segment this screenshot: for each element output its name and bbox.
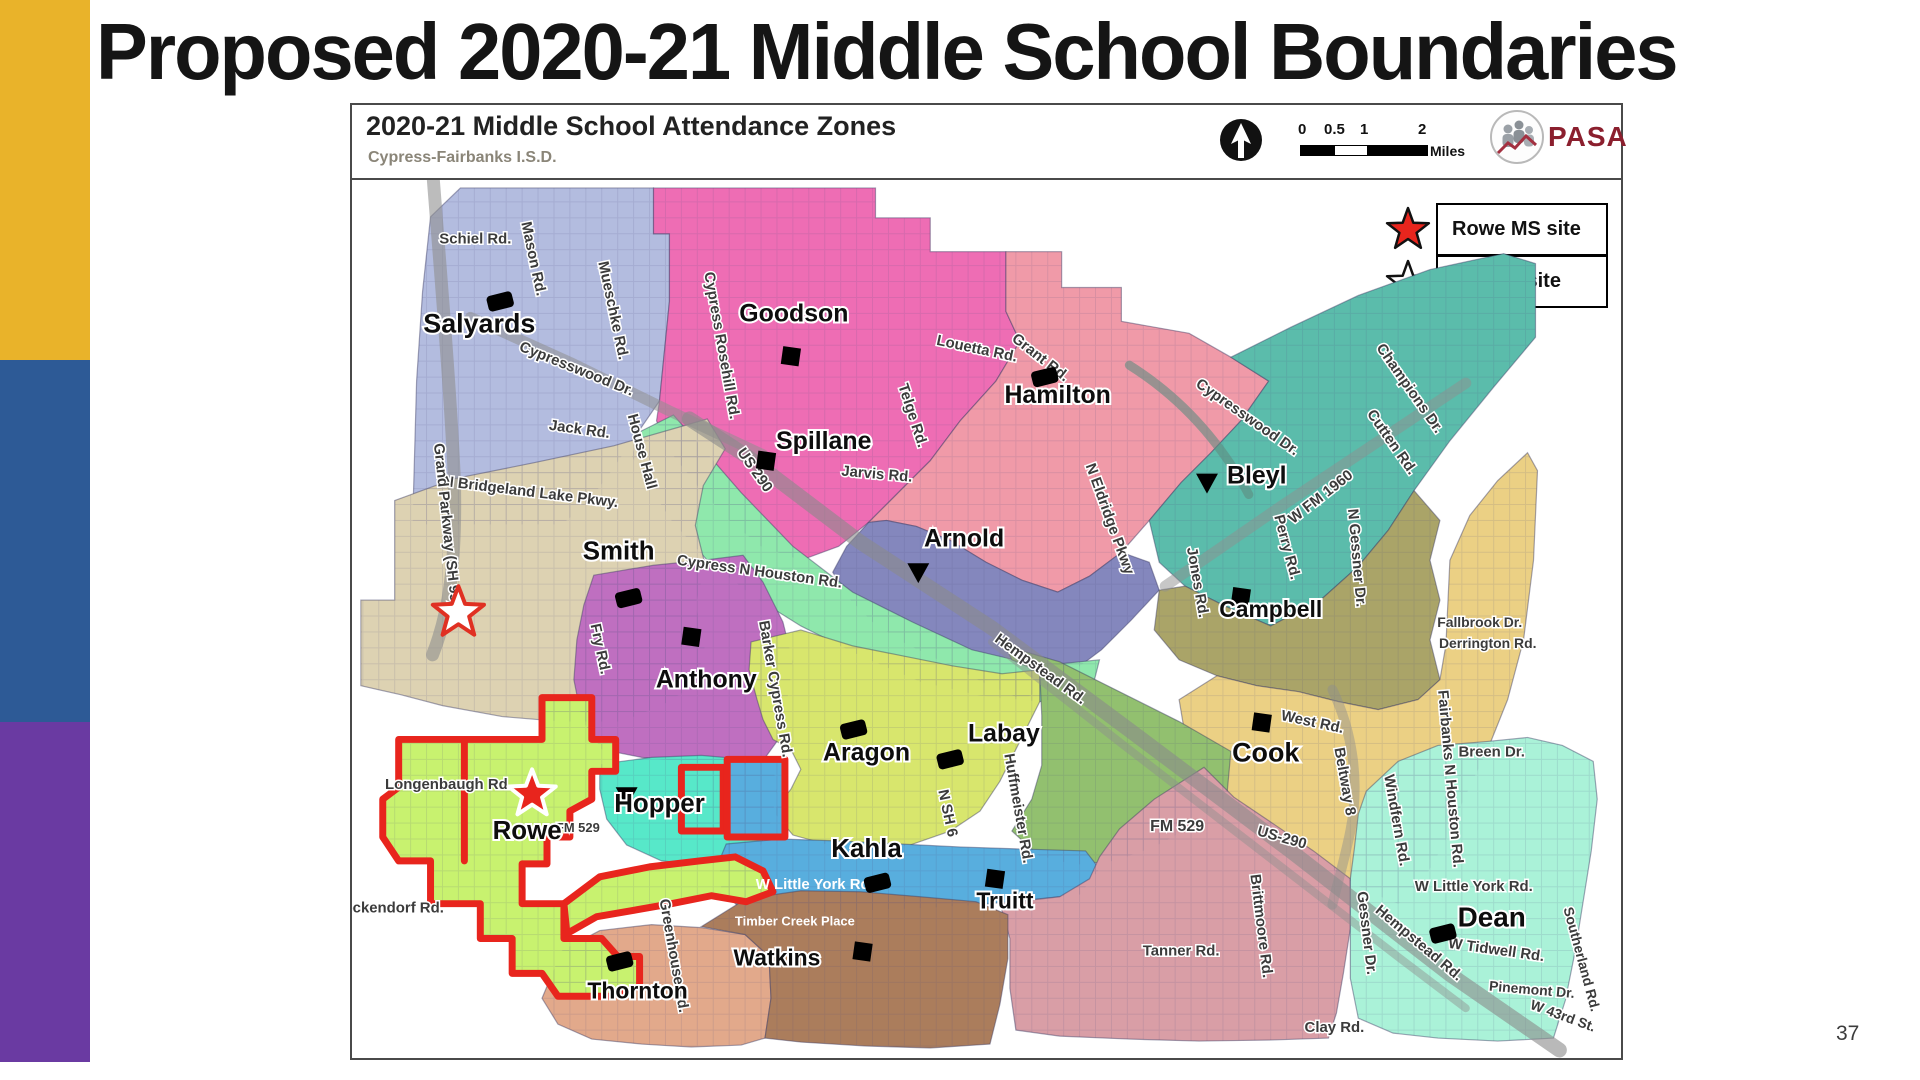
road-label: Timber Creek Place (735, 914, 855, 929)
school-zone-label: Goodson (739, 299, 848, 327)
road-label: Clay Rd. (1305, 1019, 1365, 1036)
road-label: W Little York Rd. (1415, 878, 1533, 895)
north-arrow-icon (1218, 117, 1264, 170)
school-zone-label: Labay (968, 719, 1040, 747)
sidebar-stripe-purple (0, 722, 90, 1062)
school-marker (985, 869, 1005, 889)
scale-bar: 0 0.5 1 2 Miles (1298, 121, 1488, 165)
scale-tick: 0 (1298, 121, 1306, 138)
road-label: Tanner Rd. (1143, 942, 1220, 959)
school-zone-label: Campbell (1219, 596, 1322, 622)
school-zone-label: Spillane (776, 427, 871, 455)
school-zone-label: Thornton (587, 977, 687, 1003)
scale-strip (1300, 145, 1428, 156)
scale-unit: Miles (1430, 143, 1465, 159)
school-zone-label: Hopper (614, 790, 705, 818)
school-zone-label: Anthony (656, 666, 757, 694)
map-title: 2020-21 Middle School Attendance Zones (366, 111, 896, 142)
school-zone-label: Watkins (734, 944, 821, 970)
school-marker (756, 451, 776, 471)
slide-title: Proposed 2020-21 Middle School Boundarie… (96, 6, 1677, 98)
attendance-zone-map: 2020-21 Middle School Attendance Zones C… (350, 103, 1623, 1060)
road-label: Breen Dr. (1459, 743, 1525, 760)
school-zone-label: Salyards (423, 308, 535, 338)
school-zone-label: Bleyl (1227, 462, 1286, 490)
road-label: Derrington Rd. (1439, 635, 1536, 651)
sidebar-stripe-blue (0, 360, 90, 722)
pasa-logo: PASA (1488, 107, 1628, 167)
slide: Proposed 2020-21 Middle School Boundarie… (0, 0, 1920, 1080)
sidebar-stripe-gold (0, 0, 90, 360)
pasa-logo-text: PASA (1548, 121, 1628, 153)
school-zone-label: Kahla (831, 835, 902, 863)
road-label: Beckendorf Rd. (352, 900, 444, 917)
school-zone-label: Cook (1232, 737, 1299, 767)
road-label: Longenbaugh Rd. (385, 776, 512, 793)
road-label: Fallbrook Dr. (1437, 614, 1522, 630)
school-marker (681, 627, 701, 647)
road-label: Schiel Rd. (439, 231, 511, 248)
school-marker (1252, 712, 1272, 732)
school-marker (781, 346, 801, 366)
pasa-logo-icon (1488, 107, 1546, 167)
school-zone-label: Rowe (493, 817, 562, 845)
map-canvas: Schiel Rd.Mason Rd.Mueschke Rd.Cypress R… (352, 180, 1621, 1058)
school-zone-label: Dean (1458, 902, 1526, 933)
scale-tick: 2 (1418, 121, 1426, 138)
school-marker (852, 941, 872, 961)
school-zone-label: Truitt (976, 888, 1034, 914)
school-zone-label: Hamilton (1004, 381, 1110, 409)
scale-tick: 1 (1360, 121, 1368, 138)
school-zone-label: Arnold (924, 524, 1004, 552)
map-subtitle: Cypress-Fairbanks I.S.D. (368, 149, 557, 167)
school-zone-label: Aragon (823, 738, 910, 766)
road-label: W Little York Rd. (756, 876, 874, 893)
page-number: 37 (1836, 1022, 1859, 1046)
road-label: FM 529 (1150, 818, 1204, 835)
map-header: 2020-21 Middle School Attendance Zones C… (352, 105, 1621, 180)
road-label: FM 529 (556, 820, 600, 835)
scale-tick: 0.5 (1324, 121, 1345, 138)
school-zone-label: Smith (583, 537, 655, 565)
zone-texture (727, 759, 785, 837)
